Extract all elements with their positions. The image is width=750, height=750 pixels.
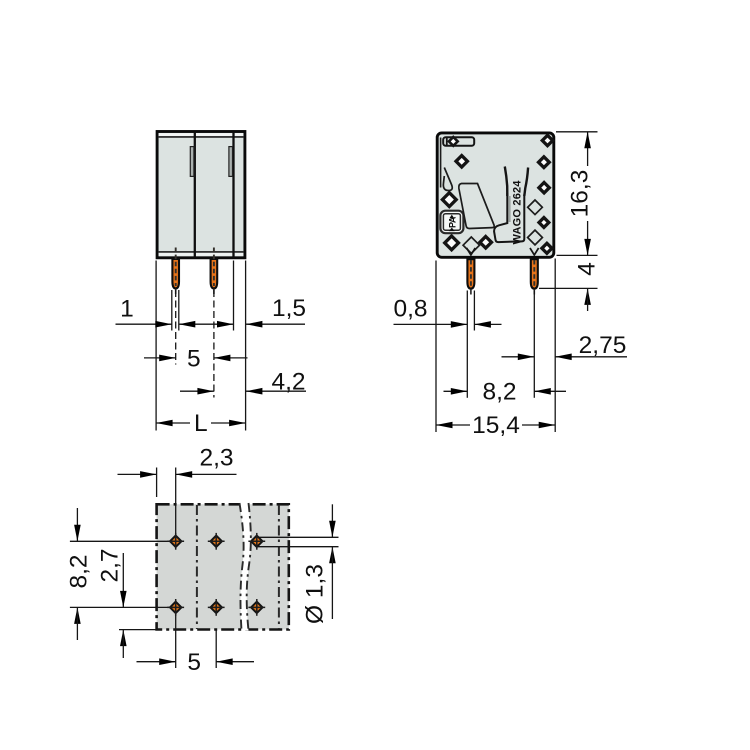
svg-text:1: 1 xyxy=(120,296,134,323)
svg-text:5: 5 xyxy=(187,649,201,676)
svg-text:2,75: 2,75 xyxy=(579,332,627,359)
svg-text:2,3: 2,3 xyxy=(199,445,233,472)
svg-text:16,3: 16,3 xyxy=(567,170,594,218)
svg-text:PA: PA xyxy=(448,216,458,228)
svg-text:0,8: 0,8 xyxy=(393,296,427,323)
svg-text:2,7: 2,7 xyxy=(97,548,124,582)
svg-text:4,2: 4,2 xyxy=(271,368,305,395)
svg-text:Ø 1,3: Ø 1,3 xyxy=(302,564,329,624)
svg-text:5: 5 xyxy=(187,345,201,372)
svg-text:1,5: 1,5 xyxy=(272,295,306,322)
svg-text:WAGO 2624: WAGO 2624 xyxy=(512,180,524,245)
svg-text:L: L xyxy=(194,410,208,437)
svg-text:8,2: 8,2 xyxy=(66,554,93,588)
svg-text:15,4: 15,4 xyxy=(472,412,520,439)
svg-text:8,2: 8,2 xyxy=(482,379,516,406)
svg-text:4: 4 xyxy=(574,262,601,276)
